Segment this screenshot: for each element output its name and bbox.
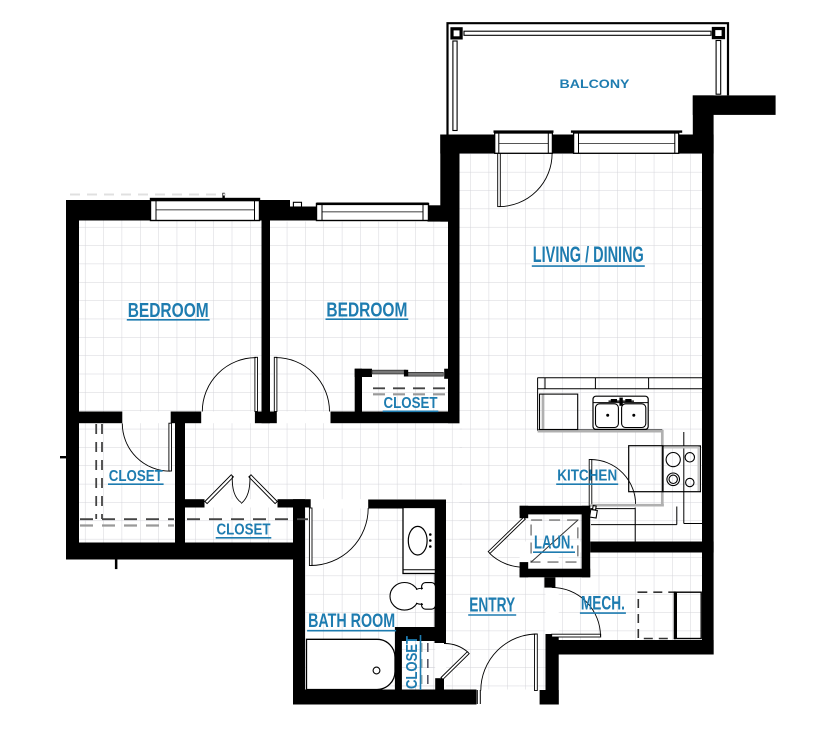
svg-text:KITCHEN: KITCHEN [557, 468, 617, 485]
svg-text:CLOSET: CLOSET [109, 468, 163, 485]
svg-text:CLOSET: CLOSET [384, 395, 438, 412]
svg-text:CLOSET: CLOSET [217, 522, 271, 539]
svg-text:MECH.: MECH. [581, 594, 625, 615]
svg-text:BATH ROOM: BATH ROOM [308, 611, 395, 632]
svg-text:ENTRY: ENTRY [469, 594, 515, 616]
svg-text:BALCONY: BALCONY [560, 79, 630, 91]
svg-text:BEDROOM: BEDROOM [128, 300, 209, 322]
svg-text:LIVING / DINING: LIVING / DINING [533, 242, 644, 267]
svg-text:LAUN.: LAUN. [534, 533, 574, 553]
svg-text:BEDROOM: BEDROOM [326, 299, 407, 321]
svg-text:CLOSET: CLOSET [404, 636, 421, 689]
